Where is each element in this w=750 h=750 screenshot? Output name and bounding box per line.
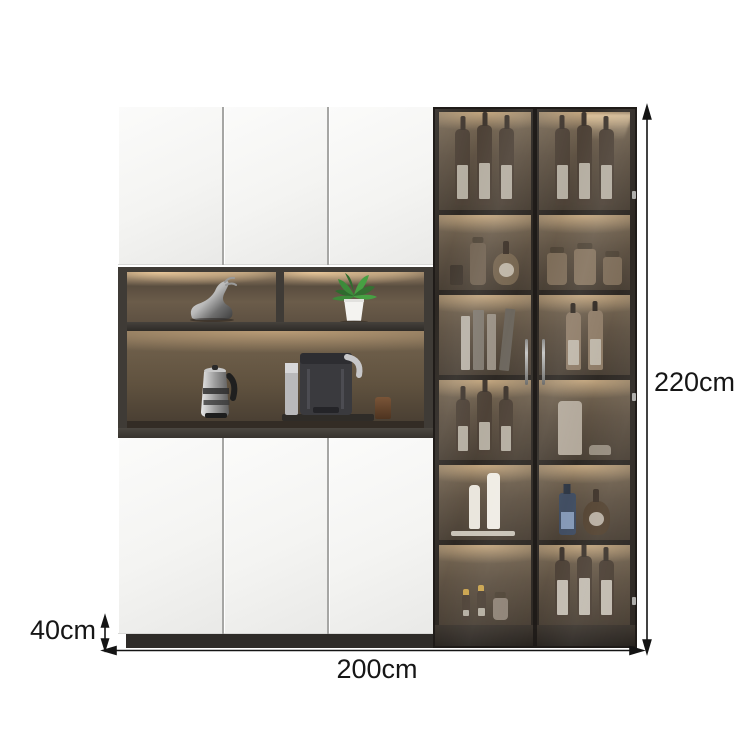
bottom-door-row xyxy=(118,438,433,634)
bottom-door-2 xyxy=(224,438,328,634)
wine-display-cabinet xyxy=(118,107,637,648)
countertop-niche xyxy=(127,331,424,428)
espresso-cup xyxy=(375,397,391,419)
hinge-dot xyxy=(632,393,636,401)
display-niche-right xyxy=(284,272,424,322)
arrow-up-icon xyxy=(643,106,651,119)
top-door-1 xyxy=(118,107,222,265)
top-door-3 xyxy=(329,107,433,265)
bottom-door-3 xyxy=(329,438,433,634)
arrow-down-small-icon xyxy=(102,639,109,650)
top-door-row xyxy=(118,107,433,265)
potted-plant xyxy=(327,269,381,323)
arrow-up-small-icon xyxy=(102,616,109,627)
kettle xyxy=(195,362,243,420)
plinth xyxy=(126,634,437,648)
white-cabinet-section xyxy=(118,107,433,648)
door-handle-right xyxy=(542,339,545,385)
width-dimension-label: 200cm xyxy=(307,655,447,685)
coffee-machine xyxy=(283,349,367,419)
counter-band xyxy=(118,428,433,438)
glass-door-right xyxy=(535,107,637,648)
top-door-2 xyxy=(224,107,328,265)
product-image: 220cm 200cm 40cm xyxy=(0,0,750,750)
middle-shelf-board xyxy=(127,322,424,331)
arrow-left-icon xyxy=(103,647,116,655)
glass-door-left xyxy=(433,107,535,648)
deer-ornament xyxy=(182,276,244,322)
depth-dimension-label: 40cm xyxy=(28,616,96,646)
hinge-dot xyxy=(632,191,636,199)
glass-doors xyxy=(433,107,637,648)
open-shelf-area xyxy=(118,267,433,428)
height-dimension-label: 220cm xyxy=(654,368,735,398)
door-handle-left xyxy=(525,339,528,385)
display-niche-left xyxy=(127,272,276,322)
arrow-down-icon xyxy=(643,640,651,653)
hinge-dot xyxy=(632,597,636,605)
bottom-door-1 xyxy=(118,438,222,634)
